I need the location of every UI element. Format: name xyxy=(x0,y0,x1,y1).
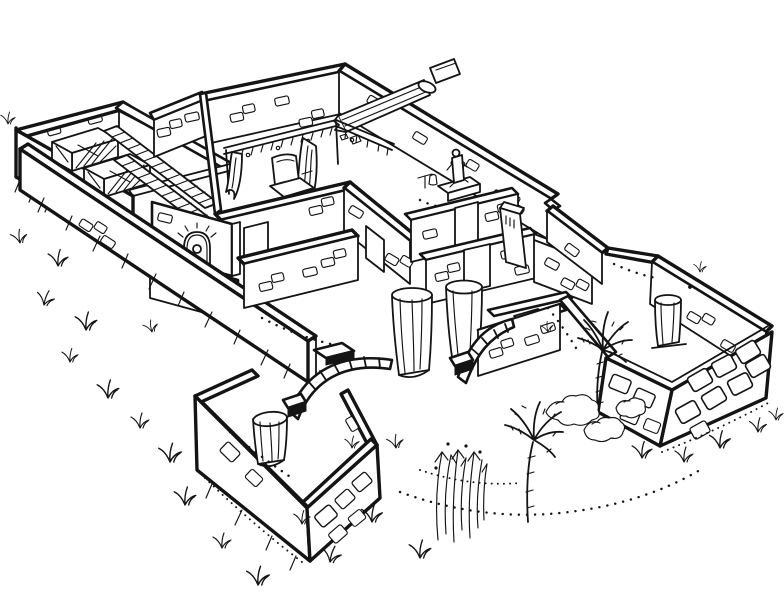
column-left xyxy=(392,288,432,377)
forecourt-band-nw xyxy=(195,370,258,402)
garden-column xyxy=(652,295,686,348)
shrine-door xyxy=(455,202,478,246)
garden-shrubs xyxy=(546,395,645,442)
path-palm xyxy=(505,402,563,522)
east-wing-band-2 xyxy=(606,248,658,263)
broken-column-stump xyxy=(252,410,287,466)
illustration-canvas: Isometric cutaway line drawing of an anc… xyxy=(0,0,784,600)
reed-clump xyxy=(435,443,487,542)
house-compound-drawing: Isometric cutaway line drawing of an anc… xyxy=(0,0,784,600)
